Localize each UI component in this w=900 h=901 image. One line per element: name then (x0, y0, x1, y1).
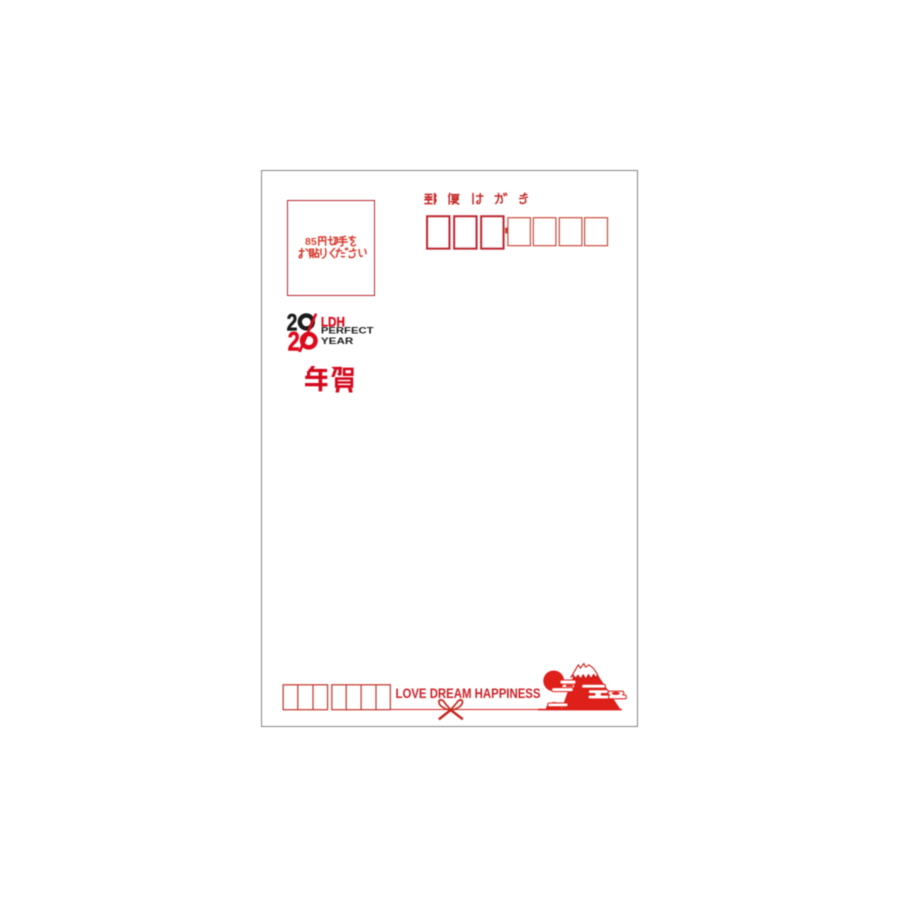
svg-text:YEAR: YEAR (321, 336, 353, 347)
svg-text:PERFECT: PERFECT (321, 326, 374, 337)
svg-text:85: 85 (305, 236, 317, 248)
svg-text:LOVE DREAM HAPPINESS: LOVE DREAM HAPPINESS (396, 686, 541, 701)
svg-text:2: 2 (288, 327, 300, 353)
